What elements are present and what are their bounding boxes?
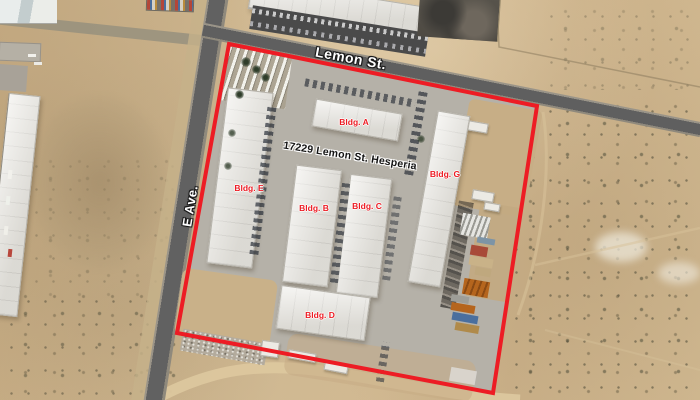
- north-strip-building: [146, 0, 194, 12]
- truck-dot-red: [8, 249, 13, 257]
- tree-6: [224, 162, 232, 170]
- sand-patch-2: [658, 262, 700, 284]
- sand-patch-1: [595, 232, 647, 262]
- desert-brush-northeast: [540, 0, 700, 90]
- tree-3: [261, 73, 270, 82]
- small-building-south: [260, 340, 280, 358]
- tree-5: [228, 129, 236, 137]
- truck-dot-1: [28, 54, 36, 57]
- bldg-d-label: Bldg. D: [305, 310, 335, 320]
- northwest-building: [0, 0, 57, 24]
- bldg-g-label: Bldg. G: [430, 169, 460, 179]
- bldg-e-label: Bldg. E: [234, 183, 263, 193]
- west-shed-1: [0, 42, 41, 62]
- tree-1: [241, 57, 251, 67]
- tree-4: [235, 90, 244, 99]
- tree-7: [417, 135, 425, 143]
- canopy-striped: [459, 213, 490, 240]
- bldg-b-label: Bldg. B: [299, 203, 329, 213]
- dirt-field-west: [30, 95, 170, 270]
- bldg-a-label: Bldg. A: [339, 117, 368, 127]
- west-shed-2: [0, 64, 28, 92]
- tree-2: [252, 65, 261, 74]
- bldg-c-label: Bldg. C: [352, 201, 382, 211]
- junk-yard: [417, 0, 501, 42]
- truck-dot-2: [34, 62, 42, 65]
- aerial-map[interactable]: Lemon St. E Ave. 17229 Lemon St. Hesperi…: [0, 0, 700, 400]
